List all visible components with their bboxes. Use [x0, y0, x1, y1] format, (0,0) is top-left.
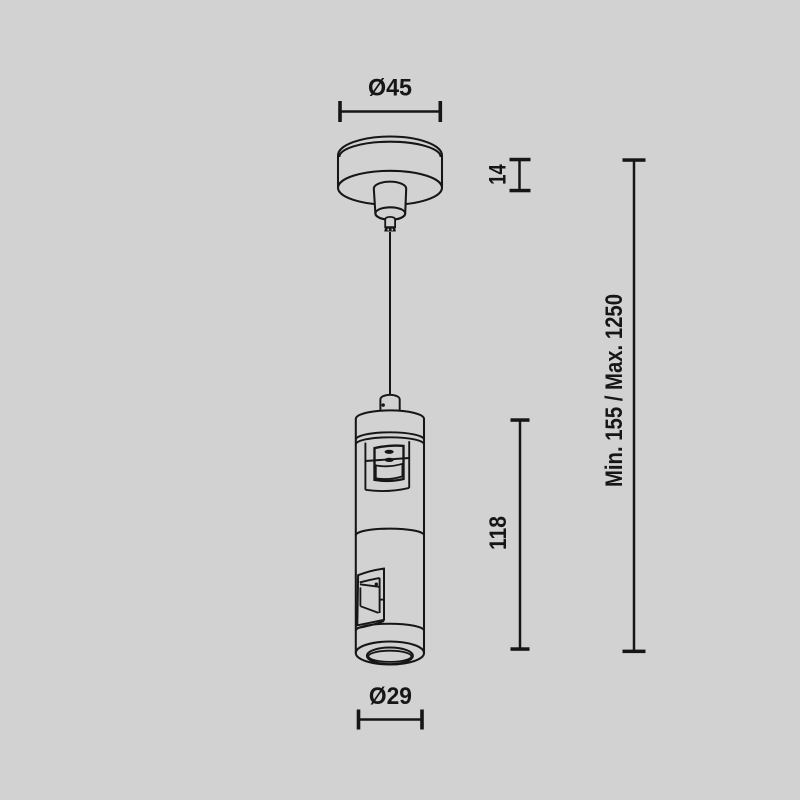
svg-text:Ø45: Ø45	[368, 75, 412, 102]
svg-text:14: 14	[485, 164, 512, 185]
svg-text:Min. 155 / Max. 1250: Min. 155 / Max. 1250	[601, 294, 628, 487]
svg-text:118: 118	[485, 516, 512, 550]
svg-text:Ø29: Ø29	[369, 683, 412, 710]
